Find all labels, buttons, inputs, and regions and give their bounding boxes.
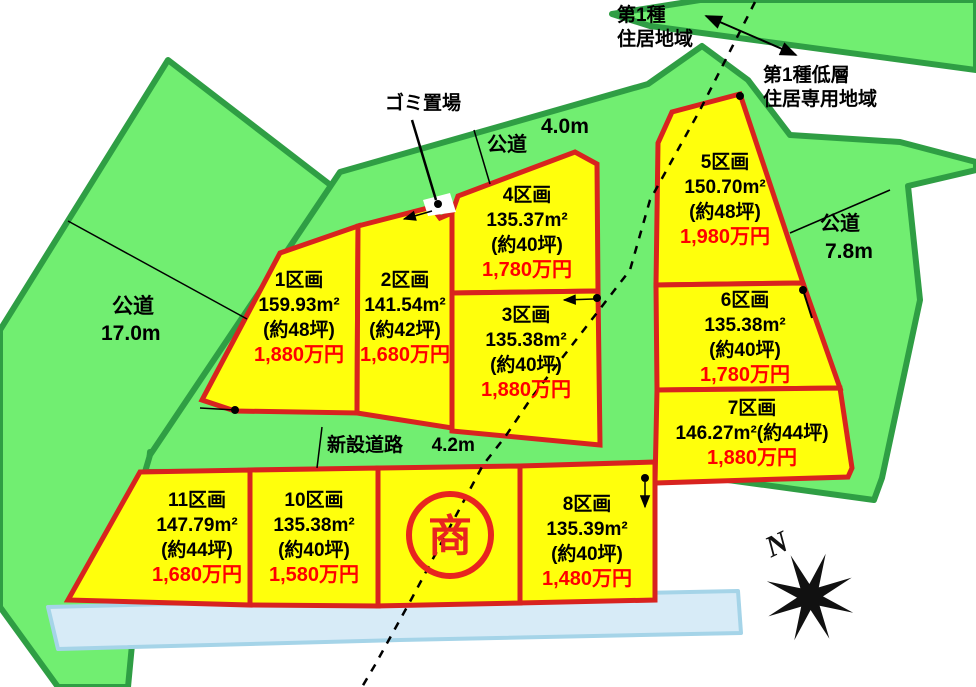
- lot-name: 3区画: [481, 303, 571, 328]
- road-left-name: 公道: [112, 295, 154, 319]
- lot-price: 1,580万円: [269, 563, 359, 588]
- lot-price: 1,480万円: [542, 567, 632, 592]
- compass-north-label: N: [759, 524, 795, 564]
- road-top-width: 4.0m: [541, 115, 589, 139]
- lot-name: 8区画: [542, 492, 632, 517]
- lot-area: 141.54m²: [360, 293, 450, 318]
- zone2-line2: 住居専用地域: [763, 88, 877, 112]
- sho-label: 商: [428, 512, 472, 561]
- lot-name: 4区画: [482, 183, 572, 208]
- lot-name: 11区画: [152, 488, 242, 513]
- lot-area: 159.93m²: [254, 293, 344, 318]
- lot-name: 5区画: [680, 150, 770, 175]
- lot-tsubo: (約40坪): [482, 233, 572, 258]
- lot-tsubo: (約40坪): [700, 338, 790, 363]
- lot-tsubo: (約40坪): [269, 538, 359, 563]
- zone1-line1: 第1種: [617, 4, 693, 28]
- lot-price: 1,680万円: [360, 343, 450, 368]
- road-top-name: 公道: [487, 133, 527, 157]
- lot-11-label: 11区画 147.79m² (約44坪) 1,680万円: [152, 488, 242, 588]
- lot-10-label: 10区画 135.38m² (約40坪) 1,580万円: [269, 488, 359, 588]
- lot-price: 1,880万円: [254, 343, 344, 368]
- survey-marker-lot5: [736, 92, 744, 100]
- lot-1-label: 1区画 159.93m² (約48坪) 1,880万円: [254, 268, 344, 368]
- lot-tsubo: (約40坪): [481, 353, 571, 378]
- compass-rose: N: [759, 524, 853, 640]
- road-new-label: 新設道路 4.2m: [327, 434, 475, 458]
- lot-area: 150.70m²: [680, 175, 770, 200]
- lot-area: 135.38m²: [481, 328, 571, 353]
- lot-price: 1,880万円: [675, 446, 828, 471]
- lot-name: 7区画: [675, 396, 828, 421]
- lot-price: 1,780万円: [482, 258, 572, 283]
- zone-label-1: 第1種 住居地域: [617, 4, 693, 52]
- road-left-width: 17.0m: [101, 322, 161, 346]
- lot-tsubo: (約42坪): [360, 318, 450, 343]
- road-right-name: 公道: [820, 212, 860, 236]
- lot-tsubo: (約48坪): [254, 318, 344, 343]
- road-new-name: 新設道路: [327, 435, 403, 456]
- lot-price: 1,780万円: [700, 363, 790, 388]
- lot-2-label: 2区画 141.54m² (約42坪) 1,680万円: [360, 268, 450, 368]
- lot-area: 135.38m²: [269, 513, 359, 538]
- lot-price: 1,880万円: [481, 378, 571, 403]
- lot-tsubo: (約44坪): [152, 538, 242, 563]
- lot-area: 135.39m²: [542, 517, 632, 542]
- lot-name: 1区画: [254, 268, 344, 293]
- lot-name: 2区画: [360, 268, 450, 293]
- lot-area: 135.38m²: [700, 313, 790, 338]
- lot-area: 146.27m²(約44坪): [675, 421, 828, 446]
- zone2-line1: 第1種低層: [763, 64, 877, 88]
- lot-3-label: 3区画 135.38m² (約40坪) 1,880万円: [481, 303, 571, 403]
- lot-area: 147.79m²: [152, 513, 242, 538]
- lot-name: 10区画: [269, 488, 359, 513]
- road-new-width: 4.2m: [432, 435, 475, 456]
- lot-tsubo: (約48坪): [680, 200, 770, 225]
- zone1-line2: 住居地域: [617, 28, 693, 52]
- lot-name: 6区画: [700, 288, 790, 313]
- lot-area: 135.37m²: [482, 208, 572, 233]
- road-right-width: 7.8m: [825, 240, 873, 264]
- garbage-label: ゴミ置場: [385, 92, 461, 116]
- lot-price: 1,680万円: [152, 563, 242, 588]
- lot-6-label: 6区画 135.38m² (約40坪) 1,780万円: [700, 288, 790, 388]
- lot-5-label: 5区画 150.70m² (約48坪) 1,980万円: [680, 150, 770, 250]
- lot-8-label: 8区画 135.39m² (約40坪) 1,480万円: [542, 492, 632, 592]
- lot-7-label: 7区画 146.27m²(約44坪) 1,880万円: [675, 396, 828, 471]
- lot-price: 1,980万円: [680, 225, 770, 250]
- lot-tsubo: (約40坪): [542, 542, 632, 567]
- site-plan: 商 N 第1種 住居地域 第1種低層 住居専用地域 ゴミ置場 公道 4.0m 公…: [0, 0, 976, 687]
- zone-label-2: 第1種低層 住居専用地域: [763, 64, 877, 112]
- lot-4-label: 4区画 135.37m² (約40坪) 1,780万円: [482, 183, 572, 283]
